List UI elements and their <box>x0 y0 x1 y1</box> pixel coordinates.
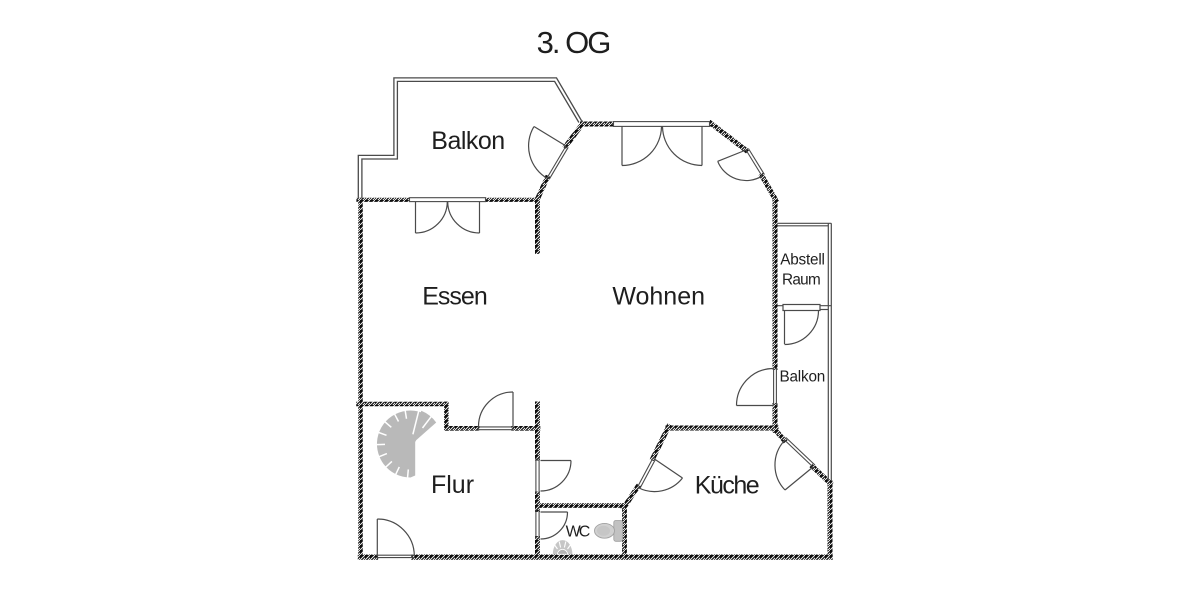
svg-text:Balkon: Balkon <box>780 369 826 386</box>
svg-text:Raum: Raum <box>782 272 820 289</box>
svg-text:Flur: Flur <box>431 471 474 499</box>
svg-text:3. OG: 3. OG <box>537 25 610 60</box>
svg-text:Wohnen: Wohnen <box>612 283 705 311</box>
svg-text:Abstell: Abstell <box>780 252 825 269</box>
svg-text:Balkon: Balkon <box>431 127 504 155</box>
svg-text:Essen: Essen <box>422 283 487 311</box>
svg-text:Küche: Küche <box>695 472 759 500</box>
svg-text:WC: WC <box>566 524 590 541</box>
